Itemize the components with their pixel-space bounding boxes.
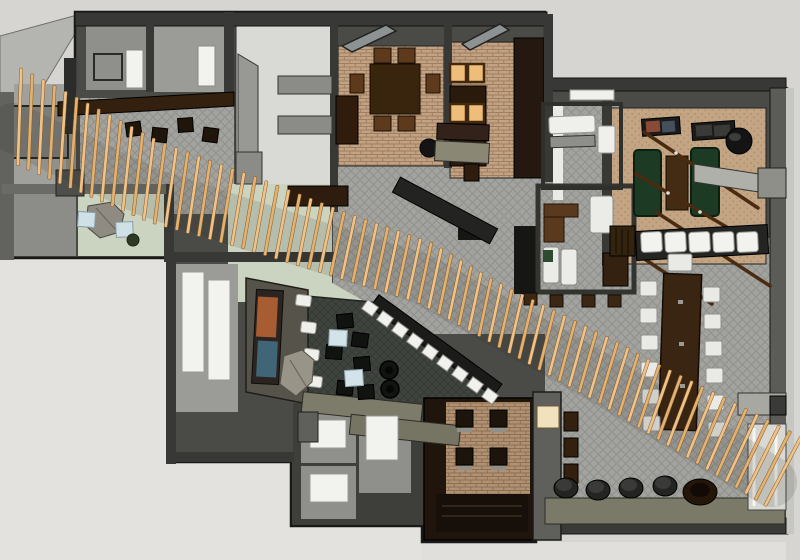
dining-a-chair [398, 48, 415, 63]
cube-stool [125, 121, 142, 137]
booth-chair [456, 448, 473, 465]
booth-chair-base [491, 428, 506, 432]
cube-stool [178, 117, 194, 132]
games-cylinder [726, 128, 752, 154]
lounge-table [344, 369, 363, 386]
office-desk-horizontal [544, 204, 578, 217]
midroom-bench [550, 135, 595, 148]
games-bench-cushion [664, 231, 686, 252]
artwork-teal [256, 341, 278, 378]
picture-2-art [696, 124, 713, 136]
screenshot-root [0, 0, 800, 560]
floorplan-canvas [0, 0, 800, 560]
black-wall-a [514, 226, 538, 294]
dining-a-chair [374, 48, 391, 63]
games-bench-cushion [736, 231, 758, 252]
conference-chair-right [703, 287, 720, 302]
restroom-c-door [366, 416, 398, 460]
conference-head-chair [668, 254, 692, 271]
dining-a-table [370, 64, 420, 114]
lounge-chair [351, 332, 369, 348]
pillar-light [537, 406, 559, 428]
booth-chair [490, 410, 507, 427]
wing-closet-panel [208, 280, 230, 380]
wall-wing-left [166, 252, 176, 464]
dining-b-chair [450, 104, 466, 122]
restroom-b-door [310, 474, 348, 502]
booth-chair-base [457, 428, 472, 432]
conference-table-dot [678, 300, 683, 304]
office-cabinet [603, 253, 628, 286]
midroom-cushion-2 [598, 126, 615, 153]
conference-chair-left [640, 281, 657, 296]
wall-wing-bottom [166, 452, 294, 462]
lounge-stool-center [386, 385, 394, 393]
games-bench-cushion [640, 231, 662, 252]
cue-rod-bolt [674, 151, 678, 155]
office-stool [608, 295, 621, 307]
cube-stool [202, 127, 219, 143]
lounge-stool-center [385, 366, 393, 374]
lounge-chair [326, 344, 343, 359]
dining-b-chair [450, 64, 466, 82]
lounge-chair [336, 313, 353, 329]
wall-room-divider-2 [224, 12, 234, 96]
pillar-chair [564, 412, 578, 431]
entry-plant [127, 234, 139, 246]
storeroom-b-door [198, 46, 215, 86]
cue-rod-bolt [698, 210, 702, 214]
conference-chair-left [640, 308, 657, 323]
bar-counter [514, 38, 544, 178]
entry-mat [77, 211, 95, 227]
wall-dining-b-right [544, 14, 553, 182]
exterior-ground-bottom [422, 542, 786, 560]
office-bed-2 [561, 249, 577, 285]
kitchen-counter-stub [278, 116, 332, 134]
conference-chair-right [706, 368, 723, 383]
conference-table-dot [679, 342, 684, 346]
conference-chair-left [641, 335, 658, 350]
storeroom-b-floor [152, 24, 228, 92]
wall-room-divider-1 [146, 14, 154, 92]
top-wall-door [570, 90, 614, 100]
conference-chair-right [705, 341, 722, 356]
booth-steps [436, 494, 528, 532]
booth-chair-base [457, 466, 472, 470]
booth-chair [456, 410, 473, 427]
games-bench-cushion [688, 231, 710, 252]
picture-1-art-b [662, 121, 676, 133]
cue-rod-bolt [666, 191, 670, 195]
picture-1-art-a [646, 121, 661, 133]
office-stool [550, 295, 563, 307]
ceiling-beam-1-cap [758, 168, 786, 198]
ceiling-beam-2-cap [770, 396, 786, 415]
lounge-table [329, 330, 348, 347]
wing-closet-panel [182, 272, 204, 372]
dining-a-chair [398, 116, 415, 131]
booth-chair [490, 448, 507, 465]
games-bench-cushion [712, 231, 734, 252]
storeroom-a-door [126, 50, 143, 88]
conference-table-dot [680, 384, 685, 388]
artwork-orange [256, 297, 278, 338]
office-stool [582, 295, 595, 307]
wall-bench-cushion [295, 294, 311, 307]
pool-table-1 [634, 150, 661, 216]
hall-stool [464, 164, 479, 181]
dining-b-chair [468, 64, 484, 82]
floor-stool-top [655, 477, 671, 489]
dining-a-chair [374, 116, 391, 131]
floor-stool-top [588, 481, 604, 493]
restroom-column [298, 412, 318, 442]
wall-bench-cushion [300, 321, 316, 334]
midroom-cushion-1 [549, 115, 596, 134]
wood-barrel-top [690, 483, 710, 497]
booth-chair-base [491, 466, 506, 470]
office-green-mat [543, 250, 553, 262]
lounge-chair [358, 384, 375, 399]
dining-a-cabinet [336, 96, 358, 144]
dining-a-side-chair [426, 74, 440, 93]
dining-b-chair [468, 104, 484, 122]
dining-a-side-chair [350, 74, 364, 93]
wall-top-right [545, 78, 786, 91]
floor-stool-top [556, 479, 572, 491]
hall-bar-shelf [437, 123, 490, 141]
games-cylinder-highlight [729, 133, 741, 141]
kitchen-steps [236, 152, 262, 184]
floor-stool-top [621, 479, 637, 491]
hall-counter [435, 141, 490, 164]
conference-chair-right [704, 314, 721, 329]
wall-top [75, 12, 547, 26]
pillar-chair [564, 438, 578, 457]
kitchen-counter-stub [278, 76, 332, 94]
